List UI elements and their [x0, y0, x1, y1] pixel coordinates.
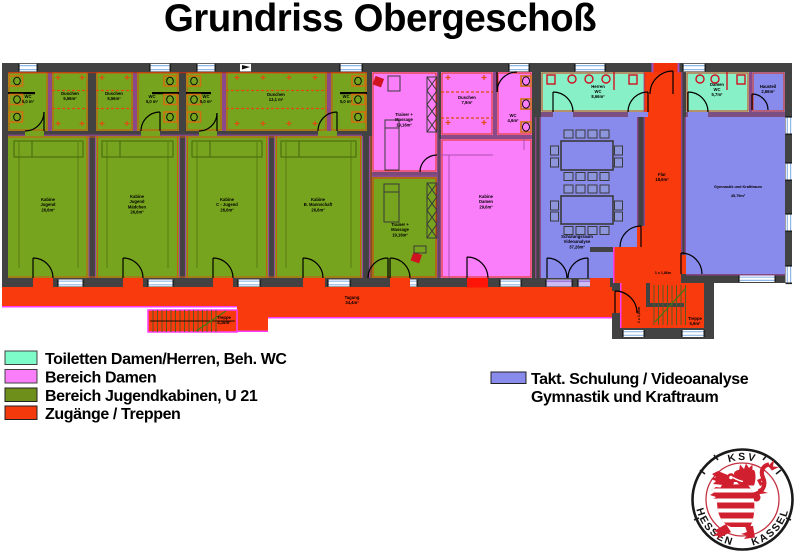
svg-text:Trainer +Massage19,16m²: Trainer +Massage19,16m² — [391, 222, 409, 237]
svg-text:Duschen5,56m²: Duschen5,56m² — [105, 91, 123, 101]
svg-text:Duschen5,56m²: Duschen5,56m² — [61, 91, 79, 101]
svg-text:Toiletten Damen/Herren, Beh. W: Toiletten Damen/Herren, Beh. WC — [45, 351, 287, 368]
svg-text:Treppe4,16m²: Treppe4,16m² — [217, 315, 231, 325]
svg-text:Tagung34,4m²: Tagung34,4m² — [345, 295, 360, 305]
svg-text:Grundriss Obergeschoß: Grundriss Obergeschoß — [164, 0, 596, 40]
svg-text:1 x 1,86m: 1 x 1,86m — [655, 271, 671, 275]
svg-text:Hausteil2,66m²: Hausteil2,66m² — [760, 84, 776, 94]
svg-text:Duschen13,1 m²: Duschen13,1 m² — [267, 92, 285, 102]
svg-text:KabineDamen29,6m²: KabineDamen29,6m² — [479, 194, 494, 209]
svg-text:KabineJugend26,6m²: KabineJugend26,6m² — [41, 197, 56, 212]
svg-text:Bereich Damen: Bereich Damen — [45, 370, 156, 387]
svg-text:Bereich Jugendkabinen, U 21: Bereich Jugendkabinen, U 21 — [45, 388, 258, 405]
svg-text:Trainer +Massage19,16m²: Trainer +Massage19,16m² — [395, 112, 413, 127]
svg-text:Takt. Schulung / Videoanalyse: Takt. Schulung / Videoanalyse — [531, 371, 749, 388]
svg-text:Zugänge / Treppen: Zugänge / Treppen — [45, 406, 180, 423]
svg-text:Treppe5,9m²: Treppe5,9m² — [688, 316, 702, 326]
svg-text:1 x 1,86m: 1 x 1,86m — [637, 307, 641, 323]
svg-text:Gymnastik und Kraftraum: Gymnastik und Kraftraum — [531, 389, 718, 406]
